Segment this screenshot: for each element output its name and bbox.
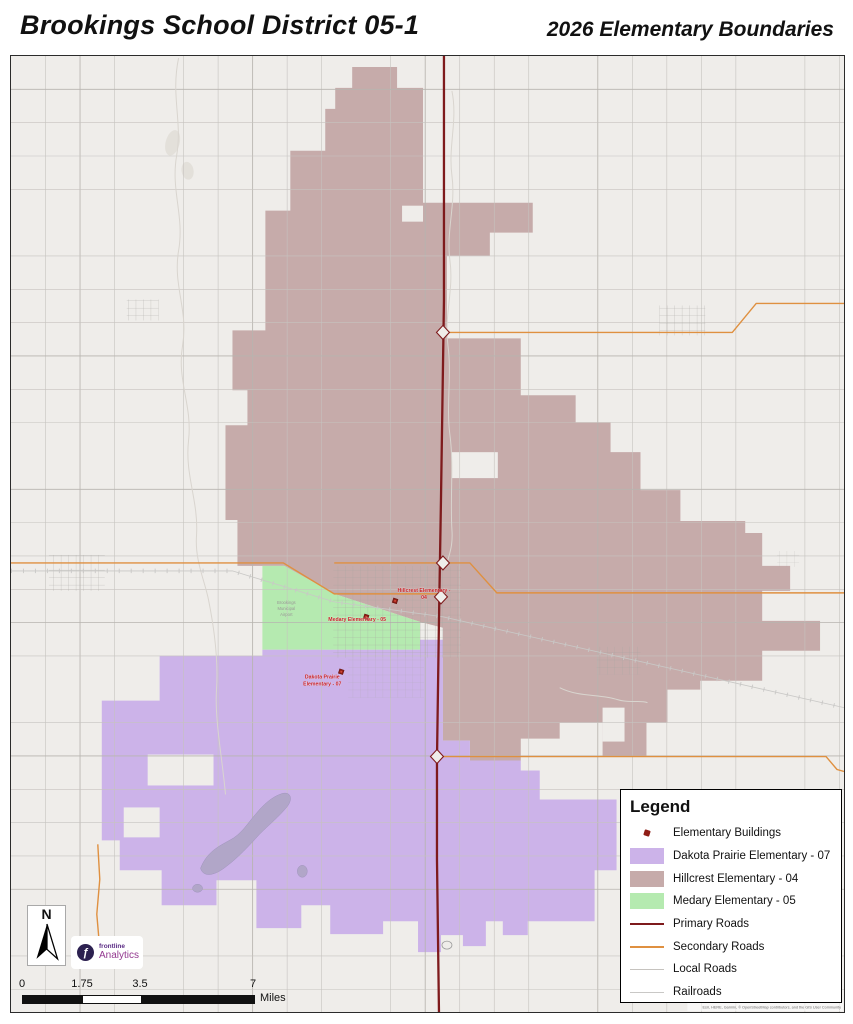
legend-item-label: Hillcrest Elementary - 04 [673,873,798,885]
sinai-streets [127,299,159,320]
volga-streets [49,555,105,591]
scale-unit-label: Miles [260,992,286,1004]
logo-product-text: Analytics [99,951,139,961]
brookings-city-streets [333,566,461,658]
scale-bar: 0 1.75 3.5 7 Miles [15,978,315,1010]
background-lakes [163,128,196,180]
legend-item-label: Primary Roads [673,918,749,930]
hillcrest-school-label-2: 04 [421,595,427,601]
legend-title: Legend [630,797,837,817]
railroad-swatch [630,992,664,993]
medary-swatch [630,893,664,909]
scale-tick-2: 3.5 [132,978,147,990]
ramp-loop-icon [442,941,452,949]
legend-item-dakota-prairie: Dakota Prairie Elementary - 07 [630,845,837,868]
legend-item-label: Railroads [673,986,722,998]
airport-label-3: Airport [280,612,293,617]
legend-item-hillcrest: Hillcrest Elementary - 04 [630,867,837,890]
legend-item-label: Elementary Buildings [673,827,781,839]
map-document: Brookings School District 05-1 2026 Elem… [0,0,853,1024]
hillcrest-school-label: Hillcrest Elementary - [398,588,451,594]
legend-item-label: Local Roads [673,963,737,975]
legend-item-label: Dakota Prairie Elementary - 07 [673,850,830,862]
legend-item-local-roads: Local Roads [630,958,837,981]
map-subtitle: 2026 Elementary Boundaries [547,18,834,42]
secondary-road-swatch [630,946,664,948]
dakota-school-label-2: Elementary - 07 [303,682,341,688]
hillcrest-swatch [630,871,664,887]
primary-road-swatch [630,923,664,925]
compass-arrow-icon [34,923,60,961]
aurora-streets [597,647,641,675]
east-town-streets [777,551,799,567]
scale-tick-0: 0 [19,978,25,990]
medary-school-label: Medary Elementary - 05 [328,617,386,623]
legend-item-label: Medary Elementary - 05 [673,895,796,907]
legend-item-label: Secondary Roads [673,941,764,953]
legend-item-primary-roads: Primary Roads [630,913,837,936]
airport-label-2: Municipal [277,606,295,611]
legend-item-railroads: Railroads [630,981,837,1004]
frontline-logo-icon: ƒ [77,944,94,961]
scale-tick-3: 7 [250,978,256,990]
page-title: Brookings School District 05-1 [20,10,419,41]
dakota-school-label: Dakota Prairie [305,675,340,681]
dakota-prairie-swatch [630,848,664,864]
north-label: N [28,906,65,923]
attribution-text: Esri, HERE, Garmin, © OpenStreetMap cont… [702,1006,841,1010]
legend: Legend Elementary Buildings Dakota Prair… [620,789,842,1003]
scale-bar-graphic [22,995,255,1004]
bruce-streets [659,305,705,335]
local-road-swatch [630,969,664,970]
airport-label: Brookings [277,600,296,605]
brookings-south-streets [348,658,424,698]
legend-item-elementary-buildings: Elementary Buildings [630,822,837,845]
legend-item-medary: Medary Elementary - 05 [630,890,837,913]
frontline-analytics-logo: ƒ frontline Analytics [71,936,143,969]
north-arrow: N [27,905,66,966]
building-marker-icon [643,830,651,838]
scale-tick-1: 1.75 [71,978,92,990]
legend-item-secondary-roads: Secondary Roads [630,935,837,958]
